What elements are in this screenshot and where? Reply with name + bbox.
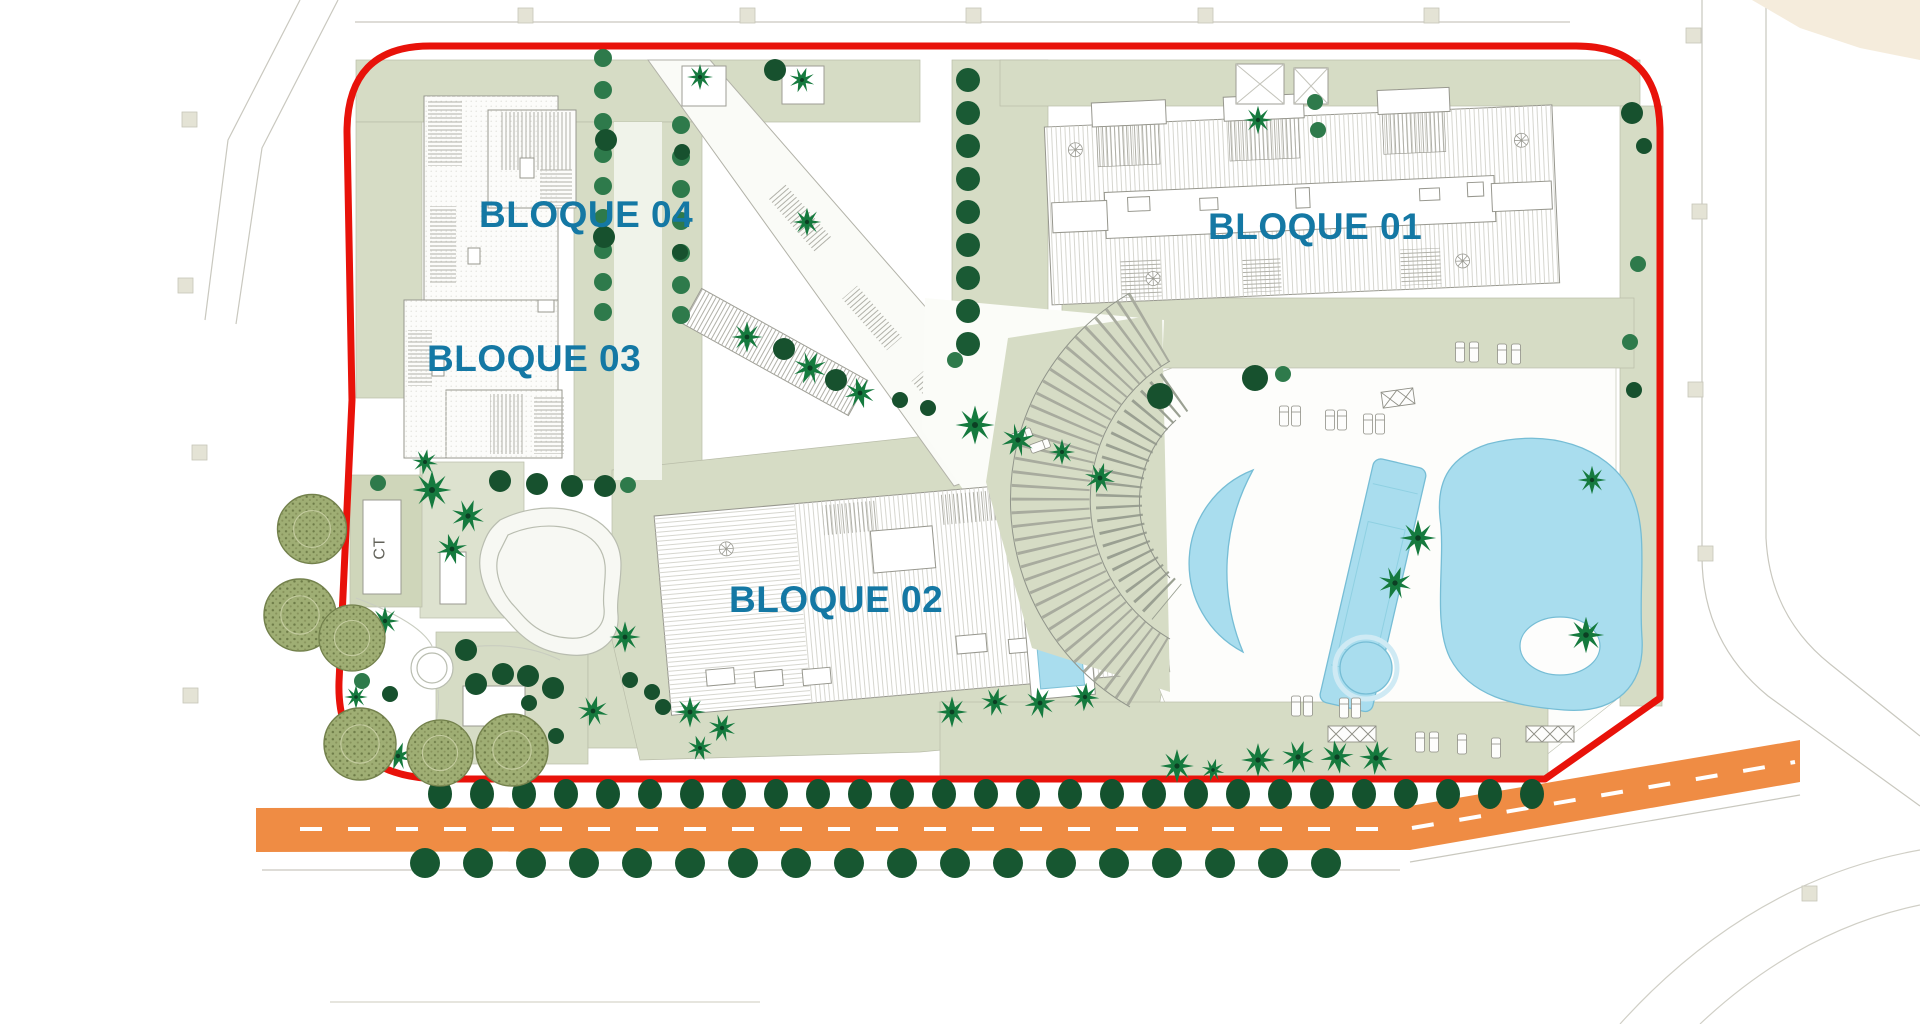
south-lawn: [940, 702, 1548, 778]
garden-path: [614, 122, 662, 480]
site-plan-graphic: [0, 0, 1920, 1024]
tree-row-south: [410, 848, 1341, 878]
tree-row-central: [956, 68, 980, 356]
building-bloque-01: [1043, 83, 1559, 305]
corner-sidewalk: [1752, 0, 1920, 60]
site-plan: BLOQUE 04 BLOQUE 03 BLOQUE 01 BLOQUE 02 …: [0, 0, 1920, 1024]
plaza-circle: [411, 647, 453, 689]
label-ct: CT: [360, 500, 402, 596]
label-bloque-04: BLOQUE 04: [479, 196, 693, 233]
label-bloque-01: BLOQUE 01: [1208, 208, 1422, 245]
label-bloque-03: BLOQUE 03: [427, 340, 641, 377]
building-bloque-03-04: [404, 96, 576, 458]
tree-row-boundary: [428, 779, 1544, 809]
label-bloque-02: BLOQUE 02: [729, 581, 943, 618]
round-pool: [1340, 642, 1392, 694]
